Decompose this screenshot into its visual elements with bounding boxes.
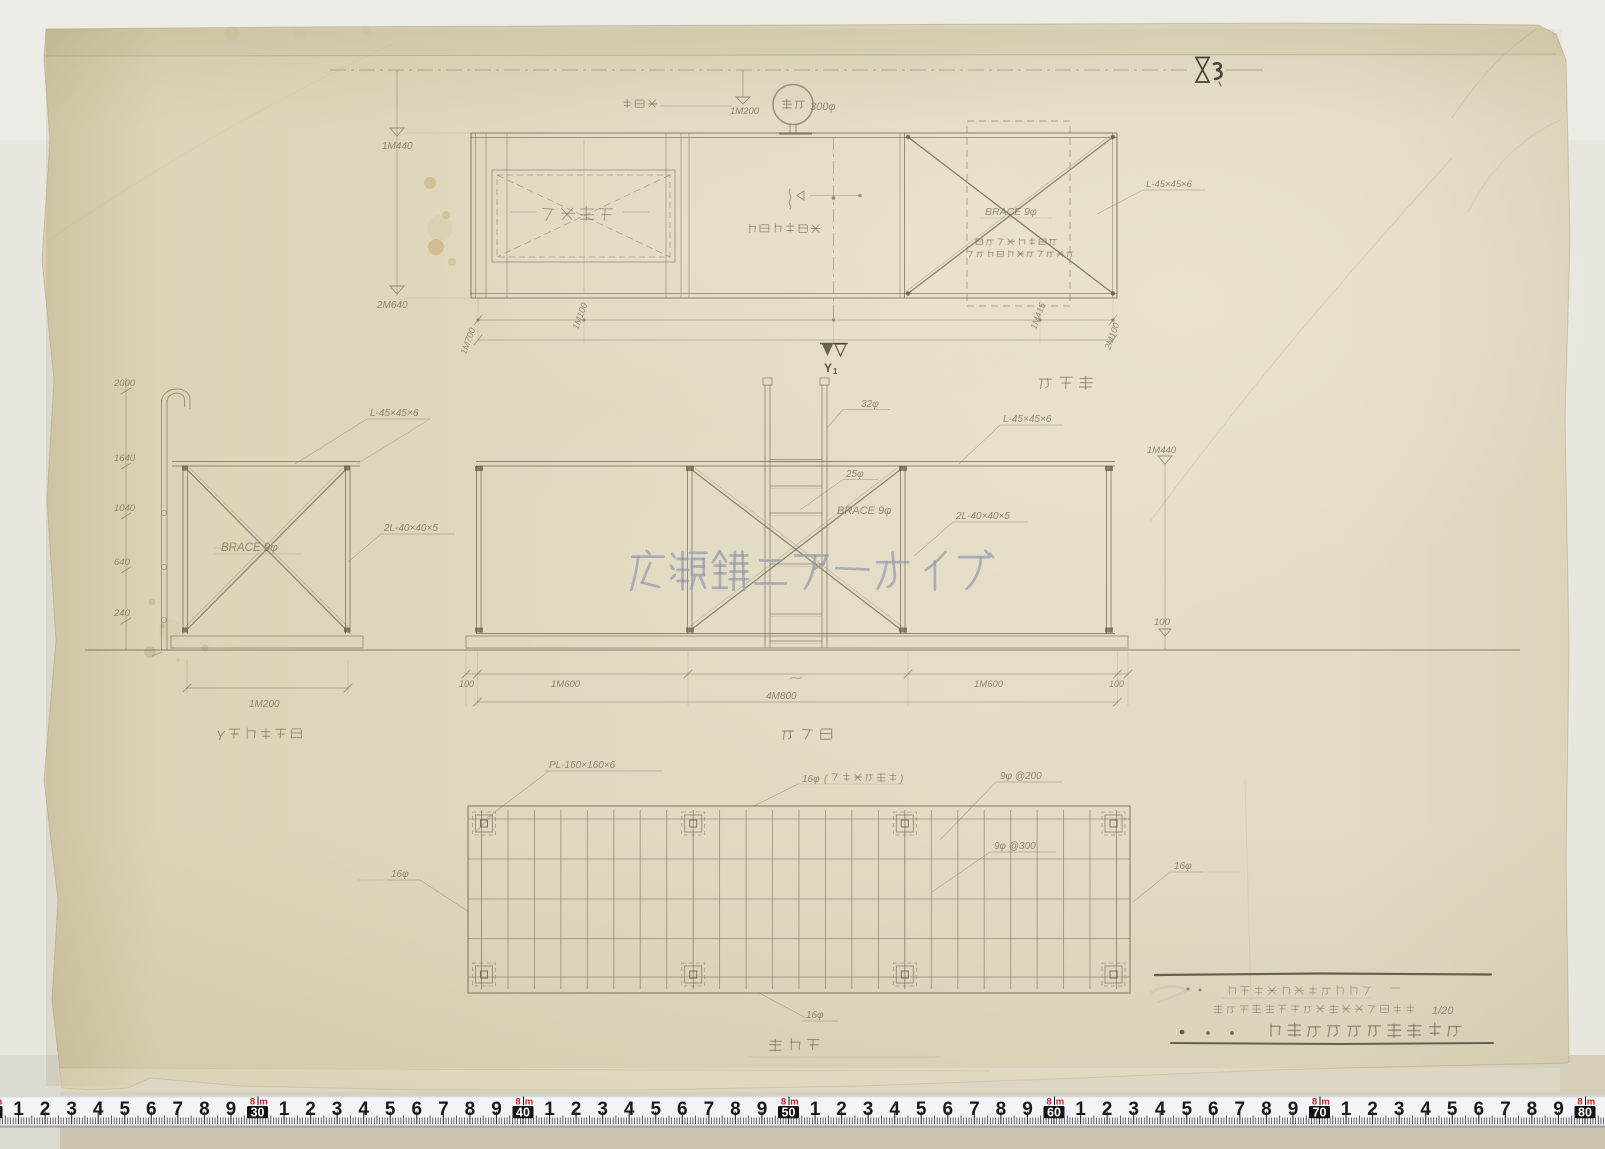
svg-text:4: 4 bbox=[358, 1099, 369, 1120]
svg-text:2L-40×40×5: 2L-40×40×5 bbox=[955, 511, 1010, 522]
svg-text:L-45×45×6: L-45×45×6 bbox=[370, 408, 419, 419]
svg-text:9: 9 bbox=[757, 1099, 768, 1120]
svg-text:16φ: 16φ bbox=[391, 869, 409, 880]
svg-text:6: 6 bbox=[412, 1099, 423, 1120]
svg-text:8: 8 bbox=[1577, 1096, 1582, 1107]
svg-text:6: 6 bbox=[1208, 1099, 1219, 1120]
svg-text:m: m bbox=[0, 1096, 2, 1107]
svg-text:240: 240 bbox=[113, 608, 131, 619]
svg-text:4: 4 bbox=[1420, 1099, 1431, 1120]
svg-text:4: 4 bbox=[93, 1099, 104, 1120]
svg-text:1M600: 1M600 bbox=[551, 679, 581, 690]
svg-text:1: 1 bbox=[833, 367, 838, 376]
svg-text:4: 4 bbox=[624, 1099, 635, 1120]
svg-text:1640: 1640 bbox=[114, 453, 136, 464]
svg-text:m: m bbox=[1321, 1096, 1329, 1107]
svg-text:50: 50 bbox=[782, 1105, 796, 1119]
svg-text:5: 5 bbox=[1447, 1099, 1458, 1120]
svg-text:9: 9 bbox=[1553, 1099, 1564, 1120]
svg-text:6: 6 bbox=[146, 1099, 157, 1120]
svg-text:1: 1 bbox=[1075, 1099, 1086, 1120]
svg-text:1M440: 1M440 bbox=[382, 141, 413, 152]
svg-text:4: 4 bbox=[889, 1099, 900, 1120]
svg-text:BRACE 9φ: BRACE 9φ bbox=[985, 206, 1037, 218]
svg-text:16φ: 16φ bbox=[1174, 861, 1192, 872]
svg-text:2: 2 bbox=[1102, 1099, 1113, 1120]
svg-text:6: 6 bbox=[677, 1099, 688, 1120]
svg-text:40: 40 bbox=[516, 1105, 530, 1119]
svg-text:m: m bbox=[259, 1096, 267, 1107]
svg-text:7: 7 bbox=[173, 1099, 184, 1120]
svg-text:2: 2 bbox=[571, 1099, 582, 1120]
svg-text:2000: 2000 bbox=[113, 378, 136, 389]
svg-text:m: m bbox=[1056, 1096, 1064, 1107]
svg-text:5: 5 bbox=[120, 1099, 131, 1120]
svg-text:640: 640 bbox=[114, 557, 131, 568]
svg-text:L-45×45×6: L-45×45×6 bbox=[1146, 179, 1193, 190]
svg-text:8: 8 bbox=[465, 1099, 476, 1120]
svg-text:9φ @200: 9φ @200 bbox=[1000, 771, 1042, 782]
svg-text:4M800: 4M800 bbox=[766, 691, 797, 702]
svg-text:7: 7 bbox=[1235, 1099, 1246, 1120]
svg-text:L-45×45×6: L-45×45×6 bbox=[1003, 414, 1052, 425]
svg-text:8: 8 bbox=[1312, 1096, 1317, 1107]
svg-text:9: 9 bbox=[226, 1099, 237, 1120]
svg-text:100: 100 bbox=[1109, 679, 1124, 689]
svg-text:1: 1 bbox=[279, 1099, 290, 1120]
svg-text:3: 3 bbox=[332, 1099, 343, 1120]
svg-text:8: 8 bbox=[199, 1099, 210, 1120]
svg-text:2: 2 bbox=[836, 1099, 847, 1120]
svg-text:2: 2 bbox=[40, 1099, 51, 1120]
svg-text:BRACE 9φ: BRACE 9φ bbox=[837, 505, 891, 517]
svg-text:m: m bbox=[790, 1096, 798, 1107]
svg-text:8: 8 bbox=[515, 1096, 520, 1107]
svg-text:7: 7 bbox=[969, 1099, 980, 1120]
svg-text:2M640: 2M640 bbox=[376, 300, 408, 311]
svg-text:): ) bbox=[899, 774, 903, 785]
svg-text:5: 5 bbox=[385, 1099, 396, 1120]
svg-text:8: 8 bbox=[996, 1099, 1007, 1120]
svg-text:m: m bbox=[525, 1096, 533, 1107]
svg-text:BRACE 9φ: BRACE 9φ bbox=[221, 542, 278, 554]
svg-text:2L-40×40×5: 2L-40×40×5 bbox=[383, 523, 438, 534]
svg-text:PL-160×160×6: PL-160×160×6 bbox=[549, 760, 616, 771]
svg-text:9: 9 bbox=[1022, 1099, 1033, 1120]
svg-text:3: 3 bbox=[597, 1099, 608, 1120]
svg-text:16φ: 16φ bbox=[802, 774, 820, 785]
svg-text:3: 3 bbox=[1394, 1099, 1405, 1120]
svg-text:6: 6 bbox=[1474, 1099, 1485, 1120]
svg-text:1M600: 1M600 bbox=[974, 679, 1004, 690]
svg-text:60: 60 bbox=[1047, 1105, 1061, 1119]
svg-text:1/20: 1/20 bbox=[1432, 1005, 1454, 1017]
svg-text:9φ @300: 9φ @300 bbox=[994, 841, 1036, 852]
svg-text:1M440: 1M440 bbox=[1147, 445, 1177, 456]
svg-text:9: 9 bbox=[491, 1099, 502, 1120]
svg-text:100: 100 bbox=[1154, 617, 1171, 628]
svg-text:300φ: 300φ bbox=[810, 101, 836, 113]
svg-text:5: 5 bbox=[651, 1099, 662, 1120]
svg-text:8: 8 bbox=[781, 1096, 786, 1107]
svg-text:1: 1 bbox=[810, 1099, 821, 1120]
svg-text:m: m bbox=[1587, 1096, 1595, 1107]
svg-text:2: 2 bbox=[1367, 1099, 1378, 1120]
svg-text:70: 70 bbox=[1313, 1105, 1327, 1119]
svg-text:1: 1 bbox=[1341, 1099, 1352, 1120]
svg-text:1: 1 bbox=[13, 1099, 24, 1120]
svg-text:80: 80 bbox=[1578, 1105, 1592, 1119]
svg-text:4: 4 bbox=[1155, 1099, 1166, 1120]
svg-text:100: 100 bbox=[459, 679, 474, 689]
svg-text:1040: 1040 bbox=[114, 503, 136, 514]
svg-text:32φ: 32φ bbox=[861, 399, 879, 410]
svg-text:8: 8 bbox=[1527, 1099, 1538, 1120]
svg-text:1: 1 bbox=[544, 1099, 555, 1120]
svg-text:7: 7 bbox=[438, 1099, 449, 1120]
svg-text:1M200: 1M200 bbox=[730, 106, 760, 117]
svg-text:3: 3 bbox=[1128, 1099, 1139, 1120]
svg-text:5: 5 bbox=[1182, 1099, 1193, 1120]
svg-text:5: 5 bbox=[916, 1099, 927, 1120]
svg-text:7: 7 bbox=[1500, 1099, 1511, 1120]
svg-text:8: 8 bbox=[250, 1096, 255, 1107]
svg-text:8: 8 bbox=[730, 1099, 741, 1120]
svg-text:2: 2 bbox=[305, 1099, 316, 1120]
svg-text:7: 7 bbox=[704, 1099, 715, 1120]
svg-text:8: 8 bbox=[1261, 1099, 1272, 1120]
svg-text:16φ: 16φ bbox=[806, 1010, 824, 1021]
svg-text:3: 3 bbox=[66, 1099, 77, 1120]
svg-text:30: 30 bbox=[251, 1105, 265, 1119]
svg-text:8: 8 bbox=[1046, 1096, 1051, 1107]
svg-text:3: 3 bbox=[863, 1099, 874, 1120]
svg-text:Y: Y bbox=[216, 728, 226, 743]
svg-text:9: 9 bbox=[1288, 1099, 1299, 1120]
svg-text:25φ: 25φ bbox=[845, 469, 864, 480]
svg-text:1M200: 1M200 bbox=[249, 699, 280, 710]
svg-text:6: 6 bbox=[943, 1099, 954, 1120]
svg-text:Y: Y bbox=[824, 361, 832, 375]
